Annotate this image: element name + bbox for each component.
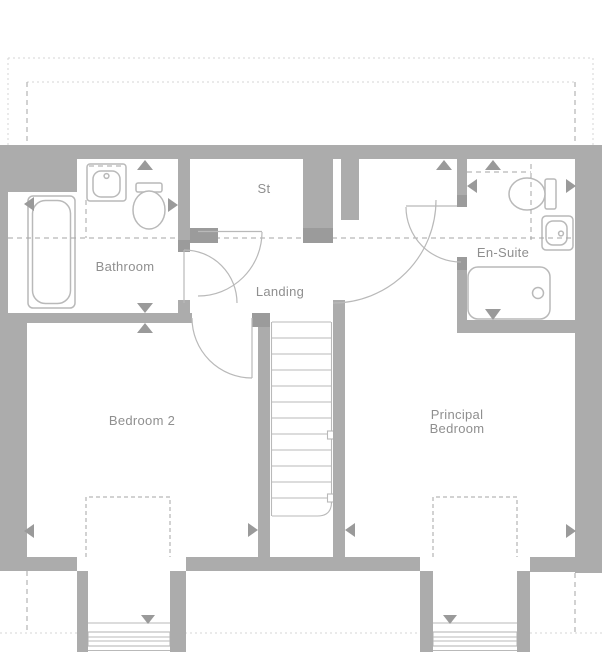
wall-bathroom-st-divider	[178, 159, 190, 240]
wall-dormer-left-a	[77, 571, 88, 652]
bedroom2-dormer-window	[88, 623, 170, 651]
bathroom-toilet	[133, 183, 165, 229]
stairs	[272, 322, 336, 516]
wall-stairwell-left	[258, 313, 270, 558]
marker-down-icon	[137, 303, 153, 313]
wall-stairwell-right	[333, 300, 345, 558]
walls	[0, 145, 602, 652]
shower-tray	[468, 267, 550, 319]
wall-top-left-block	[0, 159, 77, 192]
jamb-bedroom2-door	[252, 313, 270, 327]
room-label-ensuite: En-Suite	[477, 246, 529, 260]
wall-dormer-right-a	[420, 571, 433, 652]
marker-left-icon	[467, 179, 477, 193]
bathtub	[28, 196, 75, 308]
measurement-markers	[24, 160, 576, 624]
wall-bottom-right	[530, 557, 602, 572]
ensuite-door-arc	[406, 207, 461, 262]
marker-right-icon	[168, 198, 178, 212]
wall-landing-chimney	[341, 159, 359, 220]
ensuite-sink	[542, 216, 573, 250]
jamb-ensuite-upper	[457, 195, 467, 207]
wall-dormer-left-b	[170, 571, 186, 652]
wall-left-bathroom	[0, 192, 8, 318]
room-label-principal-line2: Bedroom	[430, 421, 485, 436]
marker-up-icon	[137, 323, 153, 333]
room-label-landing: Landing	[256, 285, 304, 299]
jamb-st-right	[303, 228, 333, 243]
marker-right-icon	[566, 179, 576, 193]
marker-up-icon	[137, 160, 153, 170]
wall-dormer-right-b	[517, 571, 530, 652]
marker-up-icon	[485, 160, 501, 170]
wall-bathroom-bedroom2-divider	[0, 313, 192, 323]
wall-ensuite-bottom	[457, 320, 575, 333]
jamb-st-left	[190, 228, 218, 243]
wall-top	[0, 145, 602, 159]
fixtures	[28, 164, 573, 651]
wall-left-bedroom2	[0, 318, 27, 571]
jamb-ensuite-lower	[457, 257, 467, 270]
wall-right	[575, 145, 602, 573]
marker-left-icon	[345, 523, 355, 537]
room-label-bathroom: Bathroom	[96, 260, 155, 274]
marker-up-icon	[436, 160, 452, 170]
wall-bottom-middle	[186, 557, 420, 571]
principal-dormer-projection	[433, 497, 517, 557]
room-label-bedroom2: Bedroom 2	[109, 414, 175, 428]
wall-bottom-left	[0, 557, 77, 571]
room-label-storage: St	[258, 182, 271, 196]
floor-plan-drawing	[0, 0, 602, 662]
bathroom-sink	[87, 164, 126, 201]
roof-outline-dotted	[0, 58, 602, 633]
marker-right-icon	[566, 524, 576, 538]
marker-right-icon	[248, 523, 258, 537]
stairs-curtail	[272, 502, 332, 516]
ensuite-toilet	[509, 178, 556, 210]
bedroom2-dormer-projection	[86, 497, 170, 557]
room-label-principal-line1: Principal	[431, 407, 484, 422]
wall-st-right	[303, 159, 333, 228]
room-label-principal: Principal Bedroom	[430, 408, 485, 436]
floor-plan: Bathroom St Landing En-Suite Bedroom 2 P…	[0, 0, 602, 662]
bedroom2-door-arc	[192, 318, 252, 378]
principal-dormer-window	[433, 623, 517, 651]
